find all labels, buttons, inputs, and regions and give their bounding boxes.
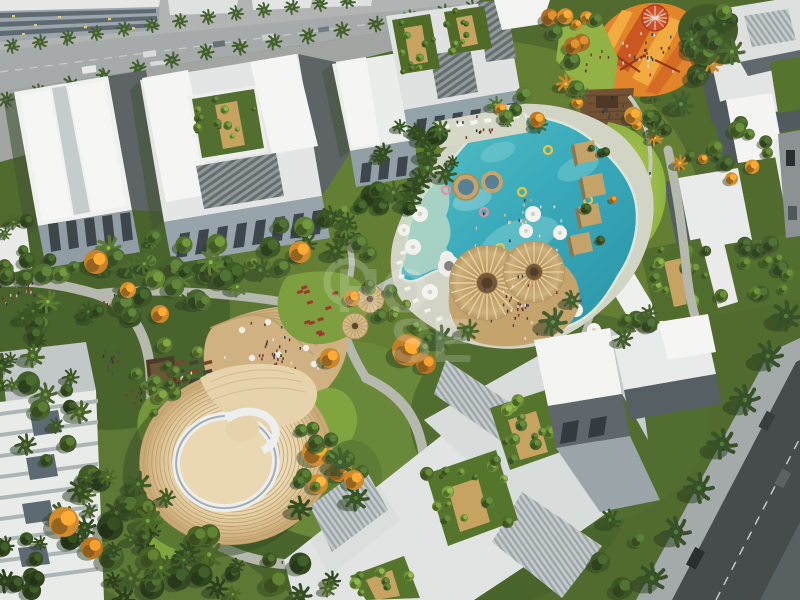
svg-text:SE: SE	[390, 307, 473, 376]
